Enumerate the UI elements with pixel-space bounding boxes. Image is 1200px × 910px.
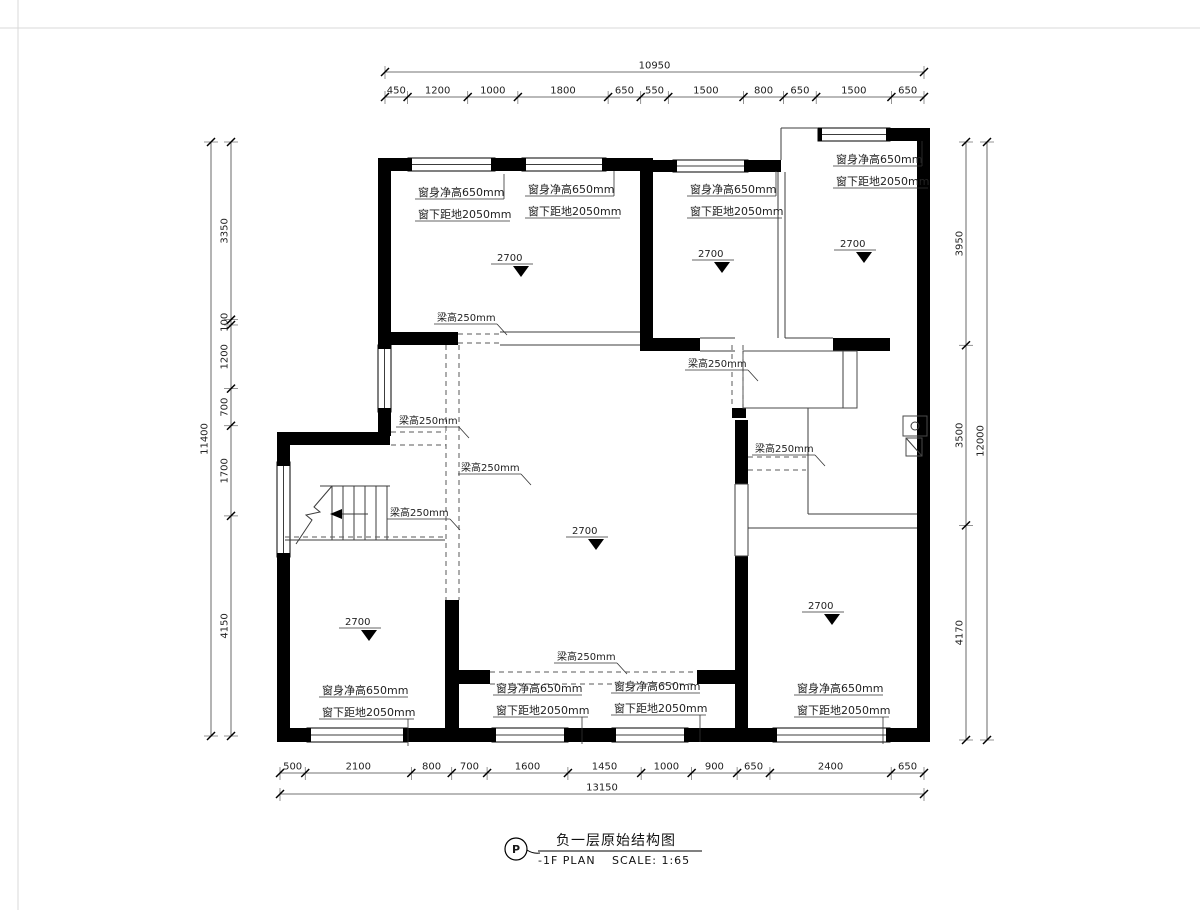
wall-segment: [735, 420, 748, 484]
ceiling-height-marker: 2700: [566, 526, 608, 550]
dim-value: 650: [898, 762, 917, 773]
dim-value: 1000: [654, 762, 679, 773]
ceiling-height-marker: 2700: [834, 239, 876, 263]
plan-title: 负一层原始结构图: [556, 833, 676, 849]
beam-height-text: 梁高250mm: [390, 506, 449, 519]
window-height-text: 窗身净高650mm: [496, 681, 582, 695]
window-cap: [378, 345, 391, 349]
ceiling-height-marker: 2700: [491, 253, 533, 277]
dim-value: 2400: [818, 762, 843, 773]
label-leader: [497, 324, 507, 335]
window-sill-text: 窗下距地2050mm: [836, 174, 929, 188]
dim-value: 1500: [693, 86, 718, 97]
wall-segment: [407, 728, 492, 742]
dim-value: 1500: [841, 86, 866, 97]
dim-value: 800: [754, 86, 773, 97]
window-cap: [491, 158, 495, 171]
window-cap: [378, 408, 391, 412]
wall-segment: [445, 600, 459, 728]
dim-value: 650: [790, 86, 809, 97]
dim-value: 1450: [592, 762, 617, 773]
dim-value: 100: [220, 313, 231, 332]
window-height-text: 窗身净高650mm: [614, 679, 700, 693]
beam-label: 梁高250mm: [434, 311, 507, 335]
window-height-text: 窗身净高650mm: [528, 182, 614, 196]
beam-label: 梁高250mm: [752, 442, 825, 466]
wall-segment: [748, 160, 781, 172]
window-cap: [403, 728, 407, 742]
window-symbol: [773, 728, 890, 742]
dim-total-value: 11400: [200, 423, 211, 455]
wall-segment: [378, 158, 408, 171]
outline-rect: [743, 351, 857, 408]
window-sill-text: 窗下距地2050mm: [614, 701, 707, 715]
window-symbol: [277, 462, 290, 557]
dim-value: 3950: [955, 231, 966, 256]
beam-height-text: 梁高250mm: [461, 461, 520, 474]
ceiling-height-marker: 2700: [692, 249, 734, 273]
dim-value: 2100: [346, 762, 371, 773]
window-cap: [492, 728, 496, 742]
window-sill-text: 窗下距地2050mm: [418, 207, 511, 221]
dim-value: 3500: [955, 423, 966, 448]
stair-break-line: [296, 486, 332, 544]
window-height-text: 窗身净高650mm: [797, 681, 883, 695]
window-sill-text: 窗下距地2050mm: [322, 705, 415, 719]
beam-height-text: 梁高250mm: [688, 357, 747, 370]
ceiling-height-marker: 2700: [802, 601, 844, 625]
dim-value: 650: [615, 86, 634, 97]
wall-segment: [495, 158, 522, 171]
marker-triangle: [856, 252, 872, 263]
dim-value: 500: [283, 762, 302, 773]
wall-segment: [697, 670, 735, 684]
ceiling-height-text: 2700: [698, 249, 723, 260]
window-cap: [886, 728, 890, 742]
dim-value: 1700: [220, 458, 231, 483]
wall-segment: [640, 338, 700, 351]
ceiling-height-text: 2700: [572, 526, 597, 537]
wall-segment: [890, 728, 930, 742]
dim-value: 1000: [480, 86, 505, 97]
window-cap: [673, 160, 677, 172]
dim-value: 1600: [515, 762, 540, 773]
window-cap: [684, 728, 688, 742]
dim-total-value: 10950: [639, 61, 671, 72]
dim-value: 550: [645, 86, 664, 97]
label-leader: [748, 370, 758, 381]
dimension-chain: 39503500417012000: [955, 138, 995, 744]
window-sill-text: 窗下距地2050mm: [528, 204, 621, 218]
window-label: 窗身净高650mm窗下距地2050mm: [415, 174, 511, 221]
plan-badge-letter: P: [512, 843, 520, 856]
window-label: 窗身净高650mm窗下距地2050mm: [525, 171, 621, 218]
dim-value: 700: [220, 398, 231, 417]
window-symbol: [612, 728, 688, 742]
wall-segment: [277, 557, 290, 742]
wall-segment: [688, 728, 773, 742]
beam-height-text: 梁高250mm: [557, 650, 616, 663]
window-label: 窗身净高650mm窗下距地2050mm: [687, 171, 783, 218]
staircase: [296, 486, 342, 544]
wall-segment: [640, 158, 653, 345]
window-cap: [744, 160, 748, 172]
window-label: 窗身净高650mm窗下距地2050mm: [833, 141, 929, 188]
window-cap: [522, 158, 526, 171]
ceiling-height-text: 2700: [808, 601, 833, 612]
window-symbol: [522, 158, 606, 171]
window-cap: [408, 158, 412, 171]
wall-segment: [391, 332, 458, 345]
window-symbol: [408, 158, 495, 171]
plan-subtitle: -1F PLAN: [538, 854, 596, 867]
window-symbol: [492, 728, 568, 742]
window-cap: [773, 728, 777, 742]
wall-segment: [459, 670, 490, 684]
dim-value: 1200: [220, 344, 231, 369]
window-cap: [612, 728, 616, 742]
dim-value: 700: [460, 762, 479, 773]
dim-value: 650: [898, 86, 917, 97]
wall-segment: [277, 728, 307, 742]
window-height-text: 窗身净高650mm: [418, 185, 504, 199]
label-leader: [459, 427, 469, 438]
window-symbol: [673, 160, 748, 172]
beam-label: 梁高250mm: [554, 650, 627, 674]
dim-value: 3350: [220, 218, 231, 243]
beam-height-text: 梁高250mm: [399, 414, 458, 427]
window-symbol: [378, 345, 391, 412]
dim-value: 800: [422, 762, 441, 773]
plan-scale: SCALE: 1:65: [612, 854, 690, 867]
dim-value: 450: [387, 86, 406, 97]
window-cap: [277, 462, 290, 466]
sheet-frame: [0, 0, 1200, 910]
window-cap: [307, 728, 311, 742]
beam-label: 梁高250mm: [685, 357, 758, 381]
wall-segment: [917, 128, 930, 742]
window-cap: [277, 553, 290, 557]
wall-segment: [568, 728, 612, 742]
beam-label: 梁高250mm: [396, 414, 469, 438]
title-block: P 负一层原始结构图 -1F PLAN SCALE: 1:65: [505, 833, 702, 867]
wall-segment: [890, 128, 917, 141]
dim-value: 650: [744, 762, 763, 773]
annotations-layer: 窗身净高650mm窗下距地2050mm窗身净高650mm窗下距地2050mm窗身…: [319, 141, 929, 746]
window-sill-text: 窗下距地2050mm: [797, 703, 890, 717]
ceiling-height-marker: 2700: [339, 617, 381, 641]
dim-value: 4150: [220, 613, 231, 638]
dim-total-value: 12000: [976, 425, 987, 457]
dimension-chain: 5002100800700160014501000900650240065013…: [276, 762, 928, 802]
marker-triangle: [361, 630, 377, 641]
dim-total-value: 13150: [586, 783, 618, 794]
window-cap: [602, 158, 606, 171]
walls-layer: [277, 128, 930, 742]
label-leader: [521, 474, 531, 485]
beam-height-text: 梁高250mm: [755, 442, 814, 455]
wall-segment: [732, 408, 746, 418]
marker-triangle: [588, 539, 604, 550]
dim-value: 1200: [425, 86, 450, 97]
beam-height-text: 梁高250mm: [437, 311, 496, 324]
ceiling-height-text: 2700: [840, 239, 865, 250]
label-leader: [815, 455, 825, 466]
wall-segment: [735, 556, 748, 742]
window-sill-text: 窗下距地2050mm: [690, 204, 783, 218]
wall-segment: [653, 160, 673, 172]
floor-plan-canvas: 窗身净高650mm窗下距地2050mm窗身净高650mm窗下距地2050mm窗身…: [0, 0, 1200, 910]
window-symbol: [307, 728, 407, 742]
window-cap: [886, 128, 890, 141]
marker-triangle: [824, 614, 840, 625]
beam-label: 梁高250mm: [458, 461, 531, 485]
window-cap: [818, 128, 822, 141]
dim-value: 1800: [550, 86, 575, 97]
wall-segment: [277, 432, 290, 462]
marker-triangle: [513, 266, 529, 277]
wall-segment: [833, 338, 890, 351]
drawing-sheet: 窗身净高650mm窗下距地2050mm窗身净高650mm窗下距地2050mm窗身…: [0, 0, 1200, 910]
window-height-text: 窗身净高650mm: [836, 152, 922, 166]
dimension-chain: 4501200100018006505501500800650150065010…: [381, 61, 928, 105]
window-cap: [564, 728, 568, 742]
window-sill-text: 窗下距地2050mm: [496, 703, 589, 717]
marker-triangle: [714, 262, 730, 273]
wall-segment: [378, 158, 391, 345]
dimension-chain: 335010012007001700415011400: [200, 138, 239, 740]
window-height-text: 窗身净高650mm: [690, 182, 776, 196]
dim-value: 4170: [955, 620, 966, 645]
window-symbol: [818, 128, 890, 141]
beam-label: 梁高250mm: [387, 506, 460, 530]
ceiling-height-text: 2700: [497, 253, 522, 264]
wall-segment: [277, 432, 390, 445]
ceiling-height-text: 2700: [345, 617, 370, 628]
dim-value: 900: [705, 762, 724, 773]
window-height-text: 窗身净高650mm: [322, 683, 408, 697]
